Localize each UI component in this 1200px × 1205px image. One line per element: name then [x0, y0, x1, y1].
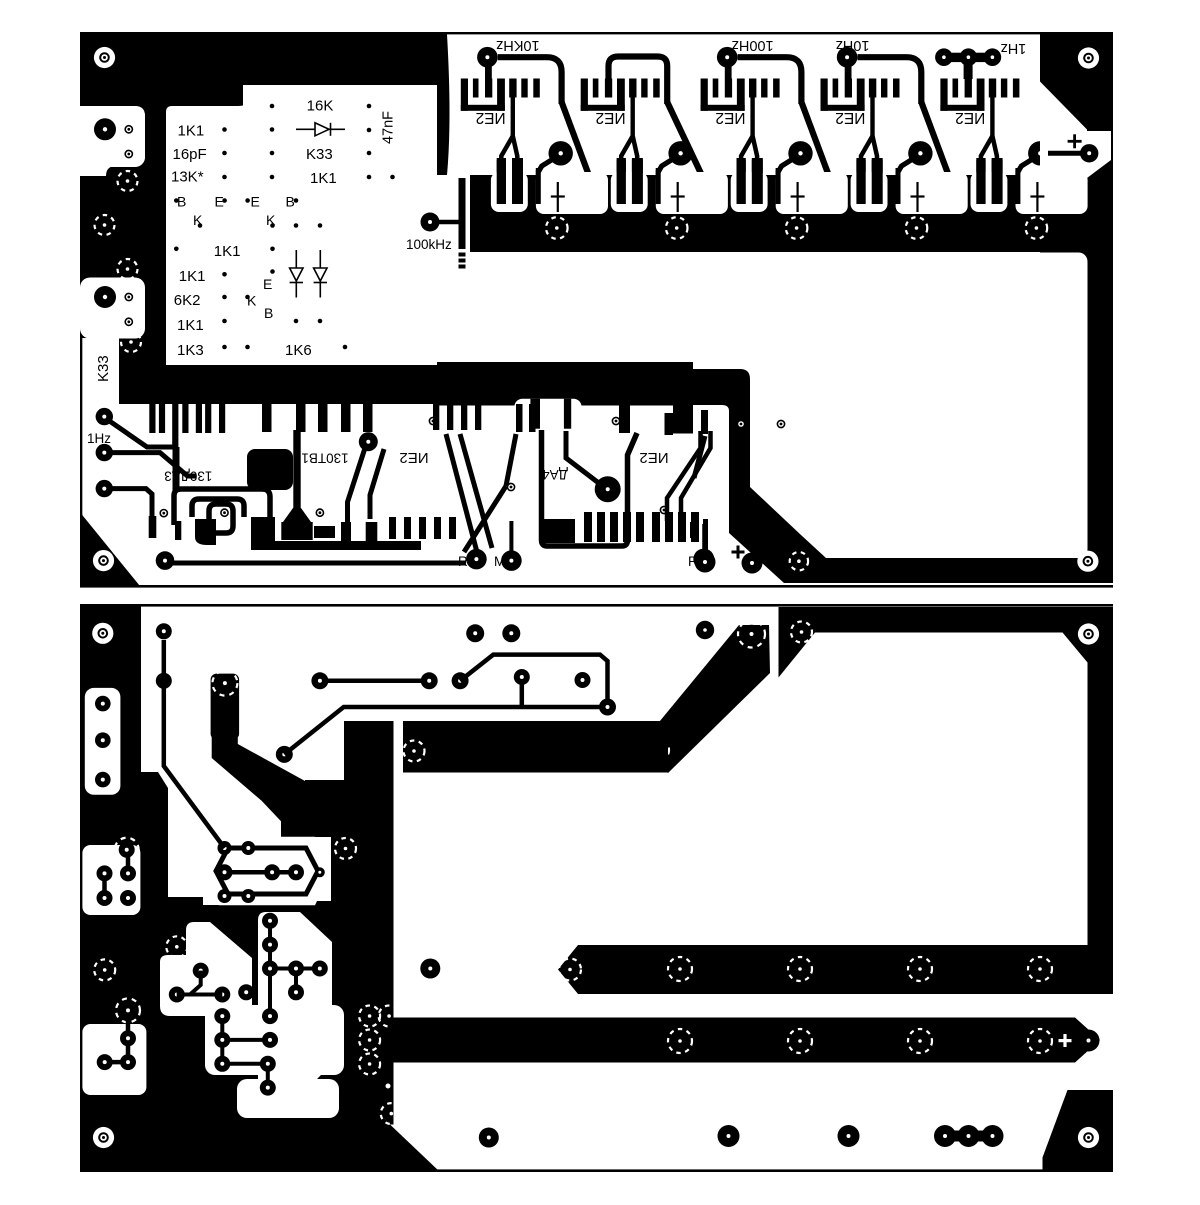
svg-text:ДА4: ДА4	[542, 467, 568, 482]
svg-text:130ТВ1: 130ТВ1	[301, 451, 348, 466]
svg-text:ИЕ2: ИЕ2	[955, 109, 985, 126]
svg-text:1K1: 1K1	[177, 317, 204, 334]
svg-text:ИЕ2: ИЕ2	[835, 109, 865, 126]
svg-text:K33: K33	[95, 355, 112, 382]
svg-text:E: E	[251, 194, 260, 210]
svg-text:1K1: 1K1	[214, 243, 241, 260]
svg-text:1K3: 1K3	[177, 342, 204, 359]
svg-text:1K6: 1K6	[285, 342, 312, 359]
svg-text:E: E	[215, 194, 224, 210]
svg-text:6K2: 6K2	[174, 292, 201, 309]
svg-text:1K1: 1K1	[310, 170, 337, 187]
svg-text:ИЕ2: ИЕ2	[595, 109, 625, 126]
svg-text:16pF: 16pF	[173, 146, 207, 163]
svg-text:10KHz: 10KHz	[496, 37, 540, 53]
svg-text:ИЕ2: ИЕ2	[476, 109, 506, 126]
svg-text:E: E	[263, 276, 272, 292]
svg-text:M: M	[494, 554, 505, 569]
svg-text:ИЕ2: ИЕ2	[715, 109, 745, 126]
svg-text:10Hz: 10Hz	[836, 37, 870, 53]
svg-text:100kHz: 100kHz	[406, 237, 452, 252]
svg-text:B: B	[264, 305, 273, 321]
svg-text:13K*: 13K*	[171, 169, 204, 186]
svg-text:ИЕ2: ИЕ2	[399, 449, 428, 466]
svg-text:ИЕ2: ИЕ2	[639, 449, 668, 466]
svg-text:130ДА3: 130ДА3	[164, 469, 212, 484]
svg-text:16K: 16K	[307, 98, 334, 115]
svg-text:B: B	[286, 194, 295, 210]
svg-text:47nF: 47nF	[381, 111, 397, 144]
svg-text:100Hz: 100Hz	[732, 37, 774, 53]
svg-text:1Hz: 1Hz	[87, 431, 111, 446]
svg-text:1Hz: 1Hz	[1001, 40, 1027, 56]
svg-text:K33: K33	[306, 146, 333, 163]
svg-text:B: B	[177, 194, 186, 210]
svg-text:K: K	[247, 293, 257, 309]
svg-text:1K1: 1K1	[179, 268, 206, 285]
svg-text:1K1: 1K1	[178, 123, 205, 140]
svg-text:R: R	[458, 554, 468, 569]
